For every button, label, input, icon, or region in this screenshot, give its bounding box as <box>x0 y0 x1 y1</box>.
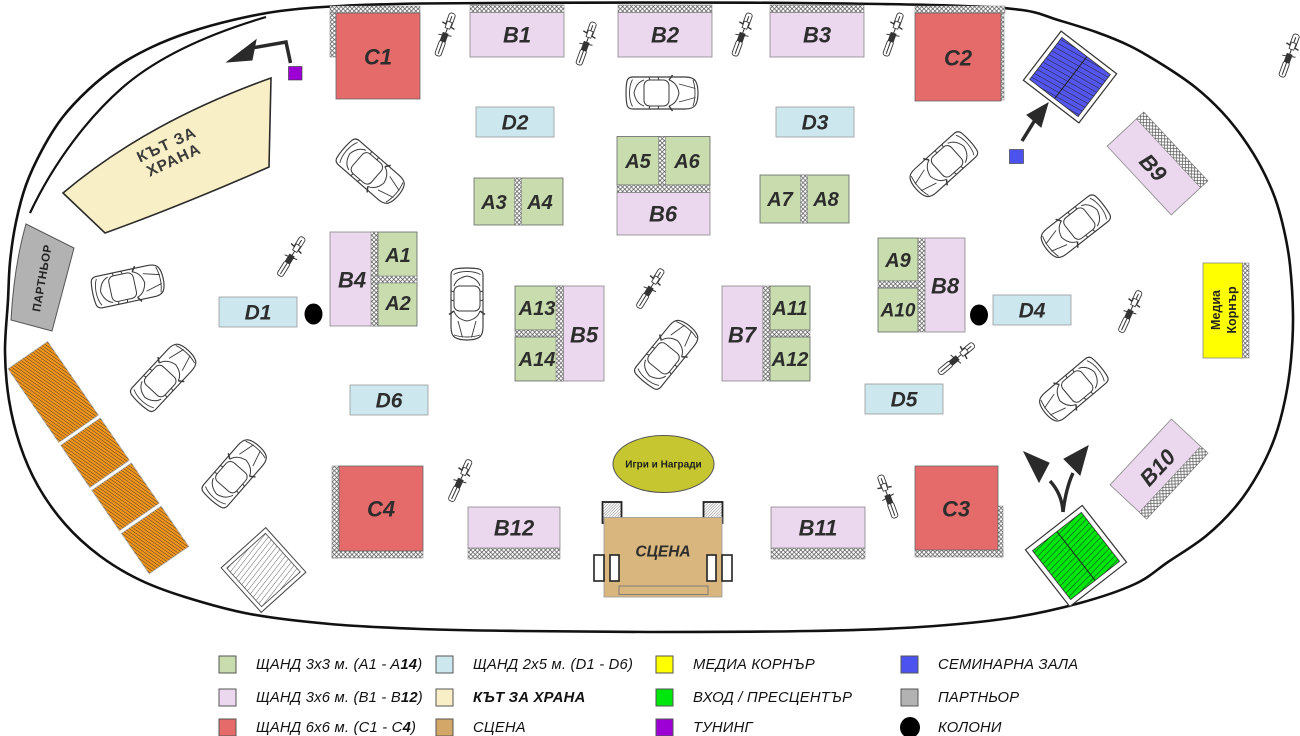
svg-text:B2: B2 <box>651 23 680 48</box>
svg-text:КЪТ ЗА ХРАНА: КЪТ ЗА ХРАНА <box>473 690 585 706</box>
svg-text:B7: B7 <box>728 323 758 348</box>
svg-text:B8: B8 <box>931 274 960 299</box>
svg-text:КОЛОНИ: КОЛОНИ <box>938 720 1002 736</box>
svg-text:ЩАНД 3x6 м. (B1 - B12): ЩАНД 3x6 м. (B1 - B12) <box>256 690 423 706</box>
svg-text:A2: A2 <box>384 293 411 315</box>
svg-text:ТУНИНГ: ТУНИНГ <box>693 720 753 736</box>
svg-text:ВХОД / ПРЕСЦЕНТЪР: ВХОД / ПРЕСЦЕНТЪР <box>693 690 852 706</box>
svg-text:A11: A11 <box>771 298 807 320</box>
svg-text:B12: B12 <box>494 516 535 541</box>
svg-text:A6: A6 <box>673 151 700 173</box>
svg-text:C4: C4 <box>367 497 395 522</box>
svg-text:A9: A9 <box>884 250 911 272</box>
svg-text:C3: C3 <box>942 497 970 522</box>
svg-text:СЦЕНА: СЦЕНА <box>635 544 690 561</box>
svg-text:B4: B4 <box>338 268 366 293</box>
svg-text:A7: A7 <box>766 189 793 211</box>
svg-text:D5: D5 <box>891 389 918 412</box>
svg-text:A13: A13 <box>518 298 556 320</box>
svg-text:D1: D1 <box>245 302 272 325</box>
svg-text:B5: B5 <box>570 323 599 348</box>
svg-text:A14: A14 <box>518 349 556 371</box>
svg-text:D6: D6 <box>376 390 403 413</box>
svg-text:ЩАНД 3x3 м. (A1 - A14): ЩАНД 3x3 м. (A1 - A14) <box>256 657 422 673</box>
svg-text:Игри и Награди: Игри и Награди <box>625 460 701 471</box>
svg-text:СЕМИНАРНА ЗАЛА: СЕМИНАРНА ЗАЛА <box>938 657 1078 673</box>
svg-text:Медиа: Медиа <box>1209 289 1223 330</box>
svg-text:Корнър: Корнър <box>1225 286 1239 334</box>
svg-text:B3: B3 <box>803 23 831 48</box>
svg-text:B6: B6 <box>649 202 678 227</box>
svg-text:A5: A5 <box>624 151 651 173</box>
svg-text:МЕДИА КОРНЪР: МЕДИА КОРНЪР <box>693 657 815 673</box>
svg-text:A3: A3 <box>480 192 507 214</box>
svg-text:ЩАНД 6x6 м. (C1 - C4): ЩАНД 6x6 м. (C1 - C4) <box>256 720 416 736</box>
svg-text:D4: D4 <box>1019 300 1046 323</box>
svg-text:A10: A10 <box>880 301 916 322</box>
svg-text:C2: C2 <box>944 46 973 71</box>
svg-text:C1: C1 <box>364 45 392 70</box>
svg-text:A1: A1 <box>384 245 411 267</box>
svg-text:D3: D3 <box>802 112 829 135</box>
svg-text:A4: A4 <box>526 192 553 214</box>
svg-text:ПАРТНЬОР: ПАРТНЬОР <box>938 690 1019 706</box>
svg-text:A8: A8 <box>812 189 839 211</box>
svg-text:СЦЕНА: СЦЕНА <box>473 720 526 736</box>
svg-text:B11: B11 <box>799 516 838 541</box>
svg-text:A12: A12 <box>771 349 809 371</box>
svg-text:B1: B1 <box>503 23 531 48</box>
svg-text:ЩАНД 2x5 м. (D1 - D6): ЩАНД 2x5 м. (D1 - D6) <box>473 657 633 673</box>
svg-text:D2: D2 <box>502 112 529 135</box>
